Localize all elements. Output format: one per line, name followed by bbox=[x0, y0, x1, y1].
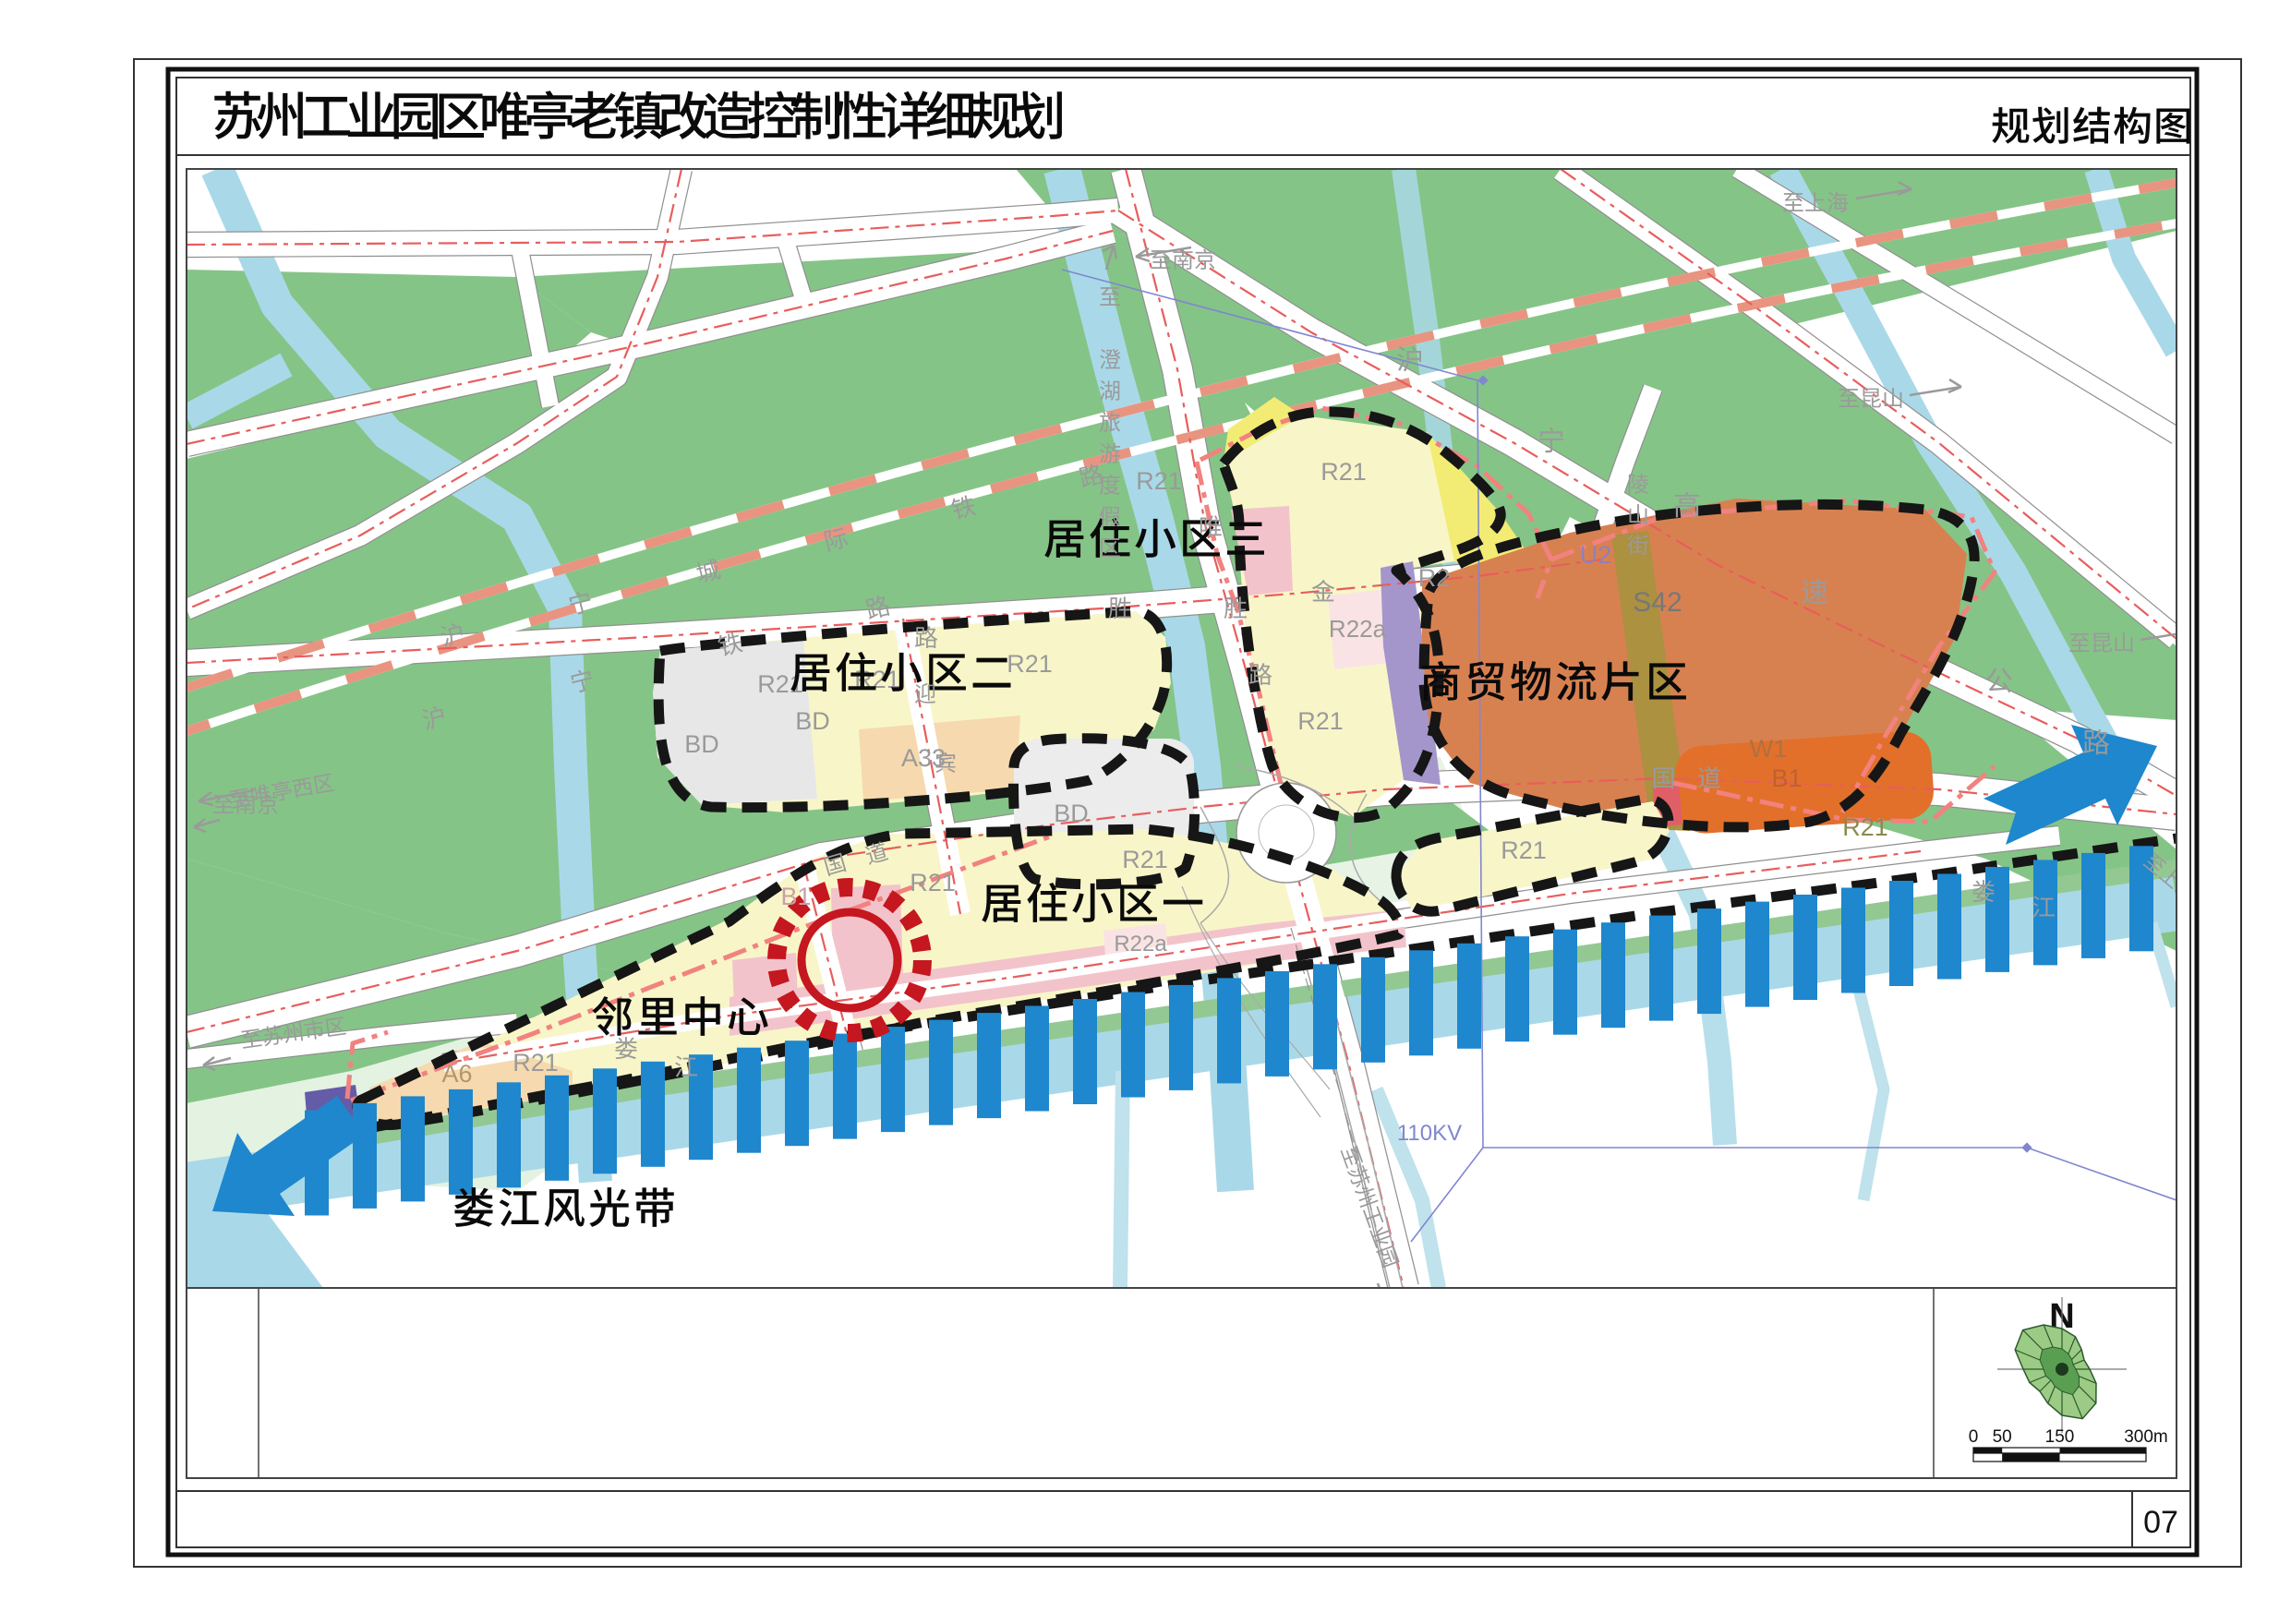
svg-text:U2: U2 bbox=[1580, 541, 1612, 569]
svg-text:R22a: R22a bbox=[1329, 615, 1387, 643]
svg-text:300m: 300m bbox=[2124, 1427, 2168, 1447]
svg-text:B1: B1 bbox=[1771, 764, 1802, 792]
svg-text:R21: R21 bbox=[910, 869, 956, 896]
svg-text:R21: R21 bbox=[1136, 467, 1182, 495]
svg-text:R21: R21 bbox=[512, 1049, 559, 1077]
svg-text:BD: BD bbox=[795, 707, 830, 735]
svg-text:S42: S42 bbox=[1633, 587, 1682, 618]
svg-text:R21: R21 bbox=[1297, 707, 1344, 735]
svg-text:50: 50 bbox=[1993, 1427, 2012, 1447]
svg-text:BD: BD bbox=[684, 730, 719, 758]
svg-text:W1: W1 bbox=[1750, 735, 1788, 763]
svg-text:R22a: R22a bbox=[1114, 932, 1167, 956]
svg-text:07: 07 bbox=[2143, 1505, 2178, 1540]
svg-text:R21: R21 bbox=[1122, 846, 1168, 873]
svg-text:A6: A6 bbox=[441, 1060, 472, 1088]
svg-text:R21: R21 bbox=[1320, 458, 1367, 486]
svg-text:R2: R2 bbox=[1418, 564, 1451, 592]
svg-text:150: 150 bbox=[2045, 1427, 2075, 1447]
svg-text:R21: R21 bbox=[1501, 836, 1547, 864]
svg-text:B1: B1 bbox=[780, 883, 811, 910]
svg-text:0: 0 bbox=[1969, 1427, 1979, 1447]
svg-text:R21: R21 bbox=[1842, 813, 1888, 841]
svg-text:BD: BD bbox=[1054, 800, 1089, 827]
svg-text:110KV: 110KV bbox=[1397, 1121, 1462, 1146]
svg-text:R21: R21 bbox=[1007, 650, 1053, 678]
